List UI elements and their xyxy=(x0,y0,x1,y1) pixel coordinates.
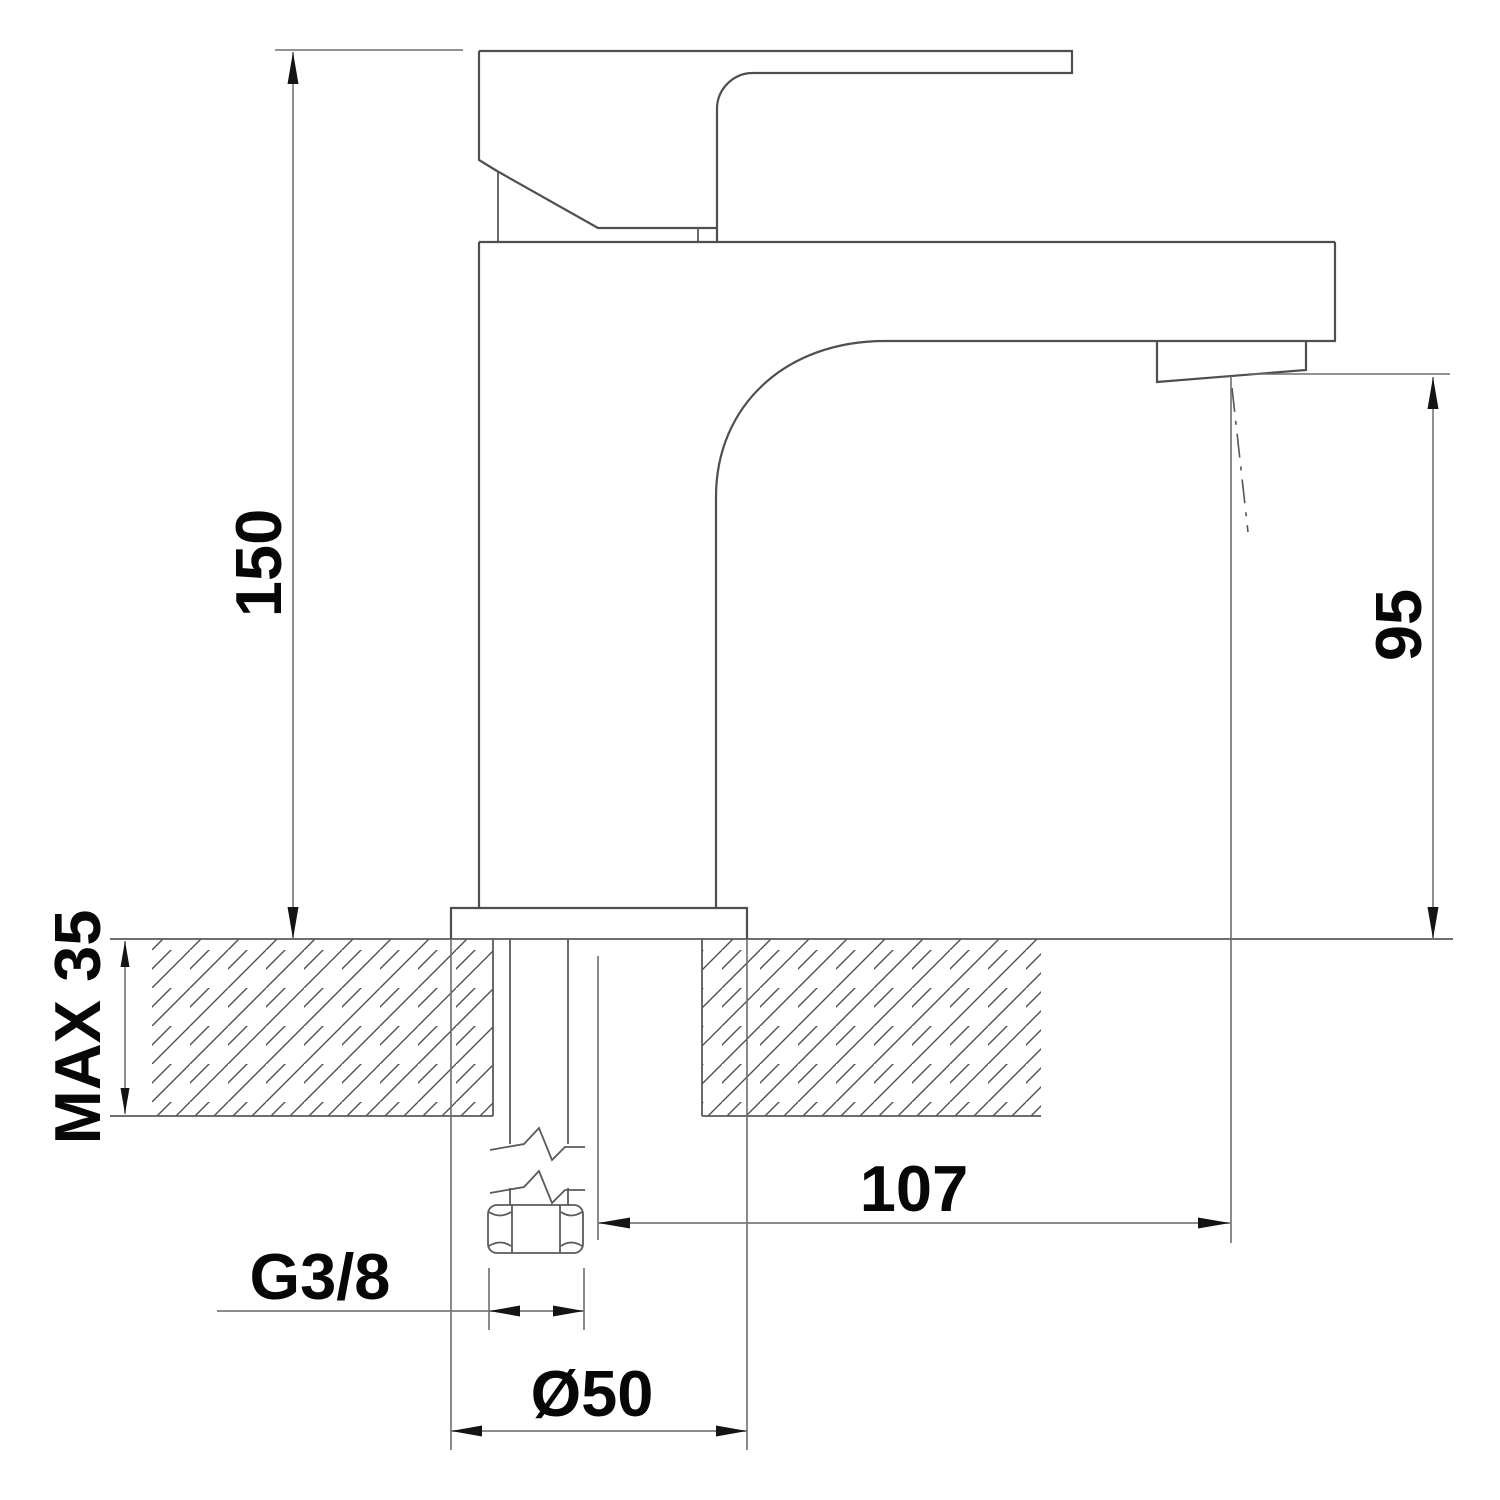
mounting-shank-assembly xyxy=(488,939,585,1253)
break-symbol-lower xyxy=(490,1171,585,1203)
dim-95-arrow-up xyxy=(1428,377,1439,409)
dim-d50-arrow-left xyxy=(451,1426,482,1437)
ext-thread xyxy=(489,1268,584,1330)
dim-150-arrow-down xyxy=(288,907,299,939)
dim-107-arrow-right xyxy=(1198,1218,1230,1229)
dim-overall-height: 150 xyxy=(222,52,299,939)
dim-g38-arrow-right xyxy=(553,1306,584,1317)
hex-nut xyxy=(488,1205,583,1253)
water-stream xyxy=(1232,388,1248,532)
dim-label-d50: Ø50 xyxy=(531,1357,654,1430)
dim-107-arrow-left xyxy=(598,1218,630,1229)
spout-underside xyxy=(716,242,1335,908)
dim-max35-arrow-up xyxy=(121,941,130,967)
dim-spout-reach: 107 xyxy=(598,1152,1230,1229)
technical-drawing-page: 150 95 MAX 35 107 G3/8 Ø50 xyxy=(0,0,1500,1500)
dim-150-arrow-up xyxy=(288,52,299,84)
handle-lever xyxy=(479,51,1072,242)
base-plate xyxy=(451,908,747,939)
dim-g38-arrow-left xyxy=(489,1306,520,1317)
dim-d50-arrow-right xyxy=(716,1426,747,1437)
faucet-outline xyxy=(451,51,1335,939)
countertop-hatch-right xyxy=(702,939,1041,1116)
countertop-section xyxy=(110,939,1453,1116)
dim-label-g38: G3/8 xyxy=(250,1240,391,1313)
dim-label-max35: MAX 35 xyxy=(41,910,114,1145)
dim-max35-arrow-down xyxy=(121,1088,130,1114)
dim-counter-thickness: MAX 35 xyxy=(41,910,130,1145)
dim-base-diameter: Ø50 xyxy=(451,1357,747,1437)
dim-label-95: 95 xyxy=(1362,589,1435,661)
dim-95-arrow-down xyxy=(1428,907,1439,939)
threaded-shank xyxy=(510,939,568,1205)
break-symbol-upper xyxy=(490,1128,585,1160)
extension-lines xyxy=(275,50,1450,1450)
water-stream-centerline xyxy=(1232,388,1248,532)
faucet-dimension-drawing: 150 95 MAX 35 107 G3/8 Ø50 xyxy=(0,0,1500,1500)
dim-label-107: 107 xyxy=(860,1152,968,1225)
countertop-hatch-left xyxy=(152,939,493,1116)
dim-label-150: 150 xyxy=(222,509,295,617)
dim-outlet-height: 95 xyxy=(1362,377,1439,939)
aerator xyxy=(1157,341,1306,382)
